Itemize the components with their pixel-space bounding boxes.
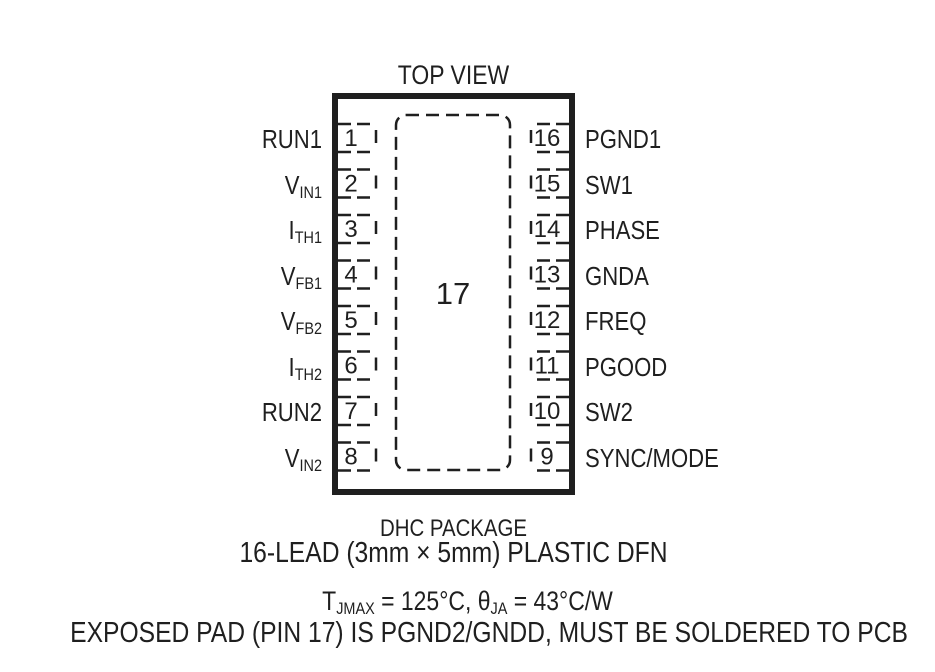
note-exposed-pad: EXPOSED PAD (PIN 17) IS PGND2/GNDD, MUST… [70,617,865,649]
pin-label-pgnd1: PGND1 [585,124,878,154]
diagram-title: TOP VIEW [350,60,557,90]
pin-number-10: 10 [534,398,561,425]
theta-value: = 43°C/W [507,586,612,616]
pin-number-13: 13 [534,262,561,289]
label-sub: TH1 [295,228,322,247]
label-sub: TH2 [295,365,322,384]
tjmax-value: = 125°C, [375,586,478,616]
pin-label-ith2: ITH2 [48,352,322,382]
pin-label-gnda: GNDA [585,261,878,291]
label-base: V [281,261,296,291]
pin-number-1: 1 [344,125,357,152]
tjmax-symbol: T [322,586,336,616]
pin-number-6: 6 [344,353,357,380]
pin-number-7: 7 [344,398,357,425]
pin-number-9: 9 [540,444,553,471]
pin-number-4: 4 [344,262,357,289]
pin-number-14: 14 [534,216,561,243]
label-sub: IN2 [300,456,322,475]
pin-number-16: 16 [534,125,561,152]
diagram-canvas: 17 1 2 3 4 5 6 7 8 [0,0,935,672]
theta-symbol: θ [478,586,491,616]
pin-number-12: 12 [534,307,561,334]
label-base: V [285,443,300,473]
pin-label-ith1: ITH1 [48,215,322,245]
pin-label-vfb1: VFB1 [48,261,322,291]
pin-number-3: 3 [344,216,357,243]
pin-label-syncmode: SYNC/MODE [585,443,878,473]
caption-package-desc: 16-LEAD (3mm × 5mm) PLASTIC DFN [196,537,712,569]
pin-label-vfb2: VFB2 [48,306,322,336]
pin-label-vin1: VIN1 [48,170,322,200]
pin-label-pgood: PGOOD [585,352,878,382]
pin-number-5: 5 [344,307,357,334]
tjmax-subscript: JMAX [336,599,375,618]
pin-label-run2: RUN2 [48,397,322,427]
label-base: RUN1 [262,124,322,154]
label-base: RUN2 [262,397,322,427]
pin-label-vin2: VIN2 [48,443,322,473]
label-sub: FB1 [295,274,322,293]
pin-label-freq: FREQ [585,306,878,336]
label-base: V [281,306,296,336]
theta-subscript: JA [490,599,507,618]
package-diagram: 17 1 2 3 4 5 6 7 8 [0,0,935,672]
label-sub: IN1 [300,183,322,202]
label-sub: FB2 [295,319,322,338]
pin-label-phase: PHASE [585,215,878,245]
label-base: V [285,170,300,200]
pin-number-11: 11 [535,353,560,380]
pin-label-run1: RUN1 [48,124,322,154]
exposed-pad-number: 17 [436,276,470,311]
pin-number-8: 8 [344,444,357,471]
pin-number-15: 15 [534,171,561,198]
pin-number-2: 2 [344,171,357,198]
pin-label-sw2: SW2 [585,397,878,427]
pin-label-sw1: SW1 [585,170,878,200]
